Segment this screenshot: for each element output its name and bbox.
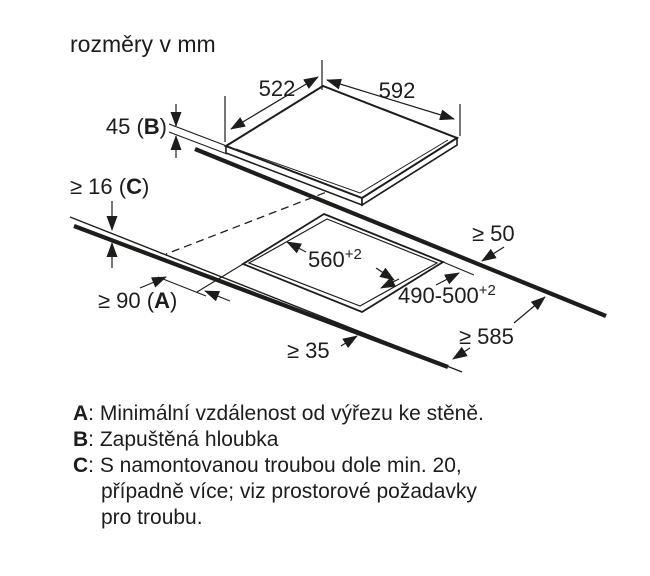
dim-label-585: ≥ 585	[459, 324, 514, 349]
legend: A: Minimální vzdálenost od výřezu ke stě…	[73, 401, 613, 531]
diagram-title: rozměry v mm	[70, 31, 216, 57]
legend-letter: B	[73, 428, 88, 451]
dim-arrow-490-downleft	[381, 279, 399, 288]
hob-top-face	[226, 86, 457, 198]
legend-item-C-cont1: případně více; viz prostorové požadavky	[73, 479, 613, 505]
dim-arrow-560-upleft	[287, 242, 306, 252]
dim-label-592: 592	[379, 78, 416, 103]
legend-letter: A	[73, 402, 88, 425]
dim-label-50: ≥ 50	[472, 221, 515, 246]
legend-text: : Zapuštěná hloubka	[88, 428, 278, 451]
dim-label-490-500: 490-500+2	[398, 282, 496, 308]
dim-leader-50	[482, 247, 504, 261]
legend-text: : Minimální vzdálenost od výřezu ke stěn…	[88, 402, 484, 425]
dim-label-560: 560+2	[308, 246, 362, 272]
legend-item-C: C: S namontovanou troubou dole min. 20,	[73, 453, 613, 479]
legend-letter: C	[73, 454, 88, 477]
dim-arrow-585-upright	[514, 297, 545, 323]
hob-body	[226, 86, 457, 205]
dim-arrow-90A-left	[140, 277, 166, 288]
dim-label-522: 522	[259, 76, 296, 101]
dim-arrow-90A-right	[205, 291, 230, 301]
dim-label-35: ≥ 35	[287, 338, 330, 363]
legend-item-B: B: Zapuštěná hloubka	[73, 427, 613, 453]
dim-leader-35	[341, 336, 357, 346]
legend-item-C-cont2: pro troubu.	[73, 505, 613, 531]
dim-label-16C: ≥ 16 (C)	[70, 174, 149, 199]
dim-label-45B: 45 (B)	[106, 114, 167, 139]
legend-text: případně více; viz prostorové požadavky	[101, 480, 477, 503]
legend-text: : S namontovanou troubou dole min. 20,	[88, 454, 462, 477]
dim-arrow-585-downleft	[453, 348, 470, 359]
legend-text: pro troubu.	[101, 506, 203, 529]
legend-item-A: A: Minimální vzdálenost od výřezu ke stě…	[73, 401, 613, 427]
dim-label-90A: ≥ 90 (A)	[98, 288, 177, 313]
dim-arrow-560-downright	[376, 268, 394, 280]
